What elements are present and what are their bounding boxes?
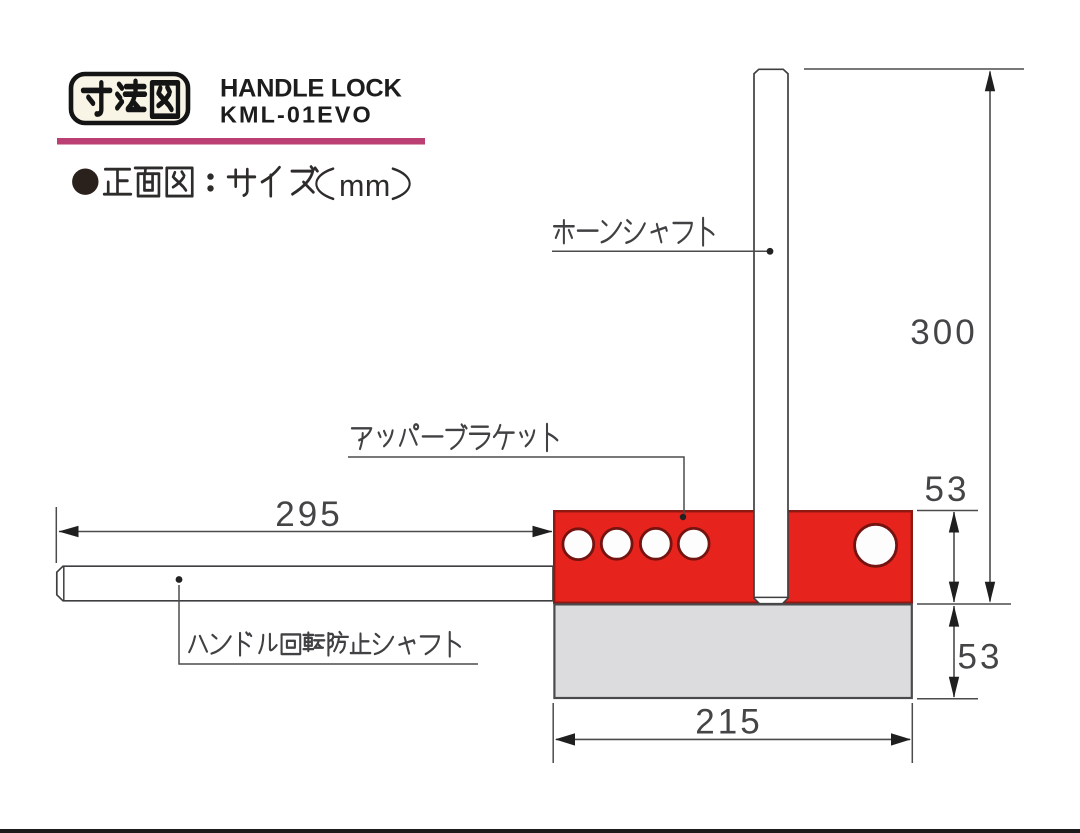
svg-text:300: 300 (910, 313, 977, 352)
svg-text:KML-01EVO: KML-01EVO (220, 101, 373, 127)
svg-text:215: 215 (695, 703, 762, 742)
svg-text:mm: mm (339, 169, 391, 203)
svg-text:295: 295 (275, 495, 342, 534)
svg-text:53: 53 (958, 638, 1003, 677)
svg-text:53: 53 (925, 470, 970, 509)
svg-text:HANDLE LOCK: HANDLE LOCK (220, 74, 402, 102)
